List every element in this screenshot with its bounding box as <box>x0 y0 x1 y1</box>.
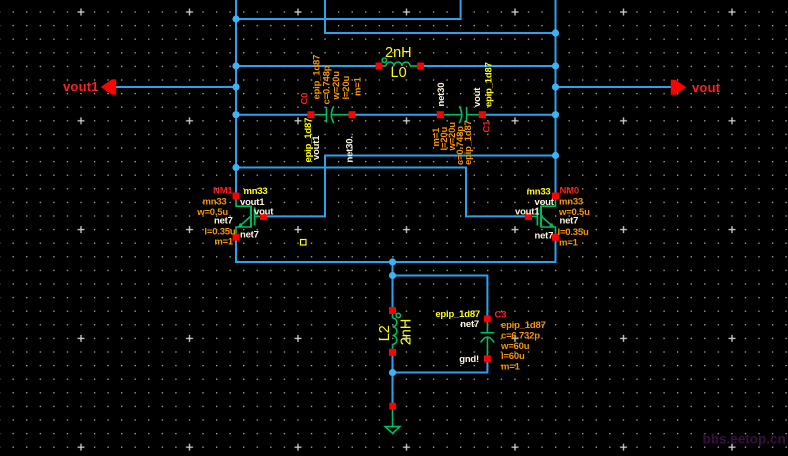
svg-text:net30.: net30. <box>345 136 356 162</box>
svg-text:l=20u: l=20u <box>341 76 352 100</box>
svg-text:L2: L2 <box>377 325 393 341</box>
svg-text:gnd!: gnd! <box>459 354 479 365</box>
svg-text:vout: vout <box>472 87 483 107</box>
svg-text:NM1: NM1 <box>213 186 233 197</box>
svg-text:l=0.35u: l=0.35u <box>558 227 589 238</box>
svg-text:vout: vout <box>254 207 274 218</box>
svg-text:m=1: m=1 <box>214 237 234 248</box>
svg-text:mn33: mn33 <box>559 197 583 208</box>
svg-text:m=1: m=1 <box>501 362 521 373</box>
svg-text:mn33: mn33 <box>244 186 268 197</box>
svg-text:vout1: vout1 <box>515 207 540 218</box>
svg-text:NM0: NM0 <box>560 186 579 197</box>
svg-text:bbs.eetop.cn: bbs.eetop.cn <box>703 432 786 447</box>
svg-text:vout1: vout1 <box>311 135 322 160</box>
svg-text:l=60u: l=60u <box>501 351 525 362</box>
svg-text:c=6.732p: c=6.732p <box>501 331 540 342</box>
svg-text:net7: net7 <box>460 319 479 330</box>
svg-text:epip_1d87: epip_1d87 <box>484 62 495 107</box>
svg-text:C0: C0 <box>300 93 311 105</box>
svg-text:epip_1d87: epip_1d87 <box>501 320 546 331</box>
svg-text:m=1: m=1 <box>559 238 579 249</box>
svg-text:net7: net7 <box>560 216 579 227</box>
svg-text:C3: C3 <box>495 310 507 321</box>
svg-text:net30: net30 <box>436 83 447 107</box>
svg-text:vout1: vout1 <box>63 79 99 94</box>
svg-text:net7: net7 <box>535 231 554 242</box>
svg-text:mn33: mn33 <box>202 197 226 208</box>
svg-text:L0: L0 <box>391 65 407 81</box>
svg-text:vout: vout <box>692 80 721 95</box>
svg-text:mn33: mn33 <box>527 187 551 198</box>
svg-text:2nH: 2nH <box>398 319 414 346</box>
svg-text:m=1: m=1 <box>353 76 364 96</box>
svg-text:net7: net7 <box>214 216 233 227</box>
svg-text:2nH: 2nH <box>385 45 412 61</box>
svg-text:C1: C1 <box>482 120 493 133</box>
svg-text:net7: net7 <box>240 230 259 241</box>
svg-text:epip_1d87: epip_1d87 <box>463 120 474 165</box>
